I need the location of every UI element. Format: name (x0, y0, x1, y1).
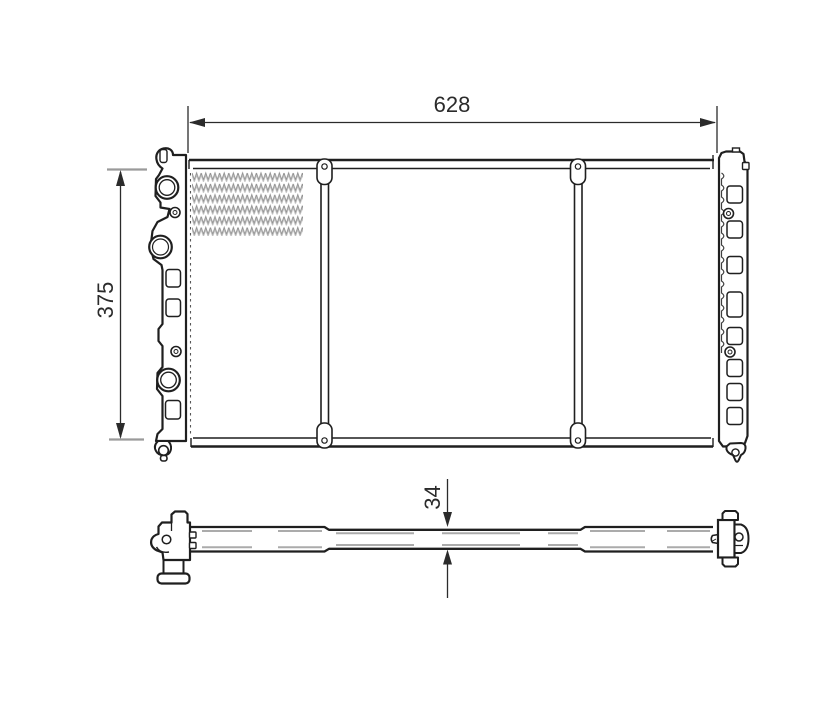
mount-slot (727, 221, 743, 238)
fitting-block (718, 520, 735, 558)
radiator-side-view (151, 511, 748, 584)
tube-dashes (202, 531, 710, 547)
dimension-height: 375 (93, 170, 147, 440)
end-tab (190, 532, 197, 538)
brace-top-rivet (317, 159, 332, 185)
depth-dimension-label: 34 (420, 485, 445, 509)
arrowhead-down (116, 423, 125, 439)
slab-bottom-edge (190, 549, 713, 552)
inlet-fitting (151, 512, 196, 584)
left-tank-bottom-tab (155, 441, 171, 456)
end-tab (190, 543, 197, 549)
width-dimension-label: 628 (434, 92, 471, 117)
inlet-block (151, 512, 190, 561)
bottom-pin (161, 456, 168, 462)
mount-slot (727, 360, 743, 377)
arrowhead-right (700, 118, 716, 127)
radiator-diagram-svg: 628 375 34 (0, 0, 840, 722)
mount-slot (727, 384, 743, 401)
left-tank (149, 148, 186, 461)
brace-bottom-rivet (571, 423, 586, 448)
drain-plug (170, 208, 180, 218)
small-boss (171, 347, 181, 357)
dimension-depth: 34 (420, 479, 452, 598)
support-brace-right (571, 159, 586, 448)
fitting-bottom-tab (723, 558, 739, 567)
height-dimension-label: 375 (93, 282, 118, 319)
brace-bottom-rivet (317, 423, 332, 448)
arrowhead-up (443, 550, 452, 565)
dimension-width: 628 (188, 92, 717, 153)
filler-neck-notch (160, 150, 167, 163)
screw-boss (724, 209, 734, 219)
mount-slot (727, 328, 743, 345)
mount-slot (166, 401, 181, 420)
top-rail (189, 155, 714, 169)
brace-top-rivet (571, 159, 586, 185)
core-fins-pattern (192, 171, 303, 236)
arrowhead-up (116, 170, 125, 186)
right-tank (719, 148, 749, 462)
mount-slot (727, 186, 743, 203)
slab-top-edge (190, 527, 713, 530)
fitting-top-tab (723, 511, 739, 520)
technical-drawing-canvas: 628 375 34 (0, 0, 840, 722)
right-tank-bottom-tab (727, 443, 746, 462)
mount-slot (166, 270, 181, 288)
pipe-flange (158, 574, 190, 584)
arrowhead-left (189, 118, 205, 127)
fitting-bulge (735, 525, 749, 554)
mount-slot (166, 299, 181, 317)
mount-slot (727, 257, 743, 274)
edge-notch (743, 163, 750, 170)
mount-slot (727, 292, 743, 317)
radiator-front-view (149, 148, 749, 462)
mount-slot (727, 408, 743, 425)
arrowhead-down (443, 512, 452, 527)
right-end-fitting (711, 511, 748, 567)
screw-boss (725, 347, 735, 357)
cap-bump (733, 148, 740, 152)
support-brace-left (317, 159, 332, 448)
bottom-rail (191, 438, 713, 447)
